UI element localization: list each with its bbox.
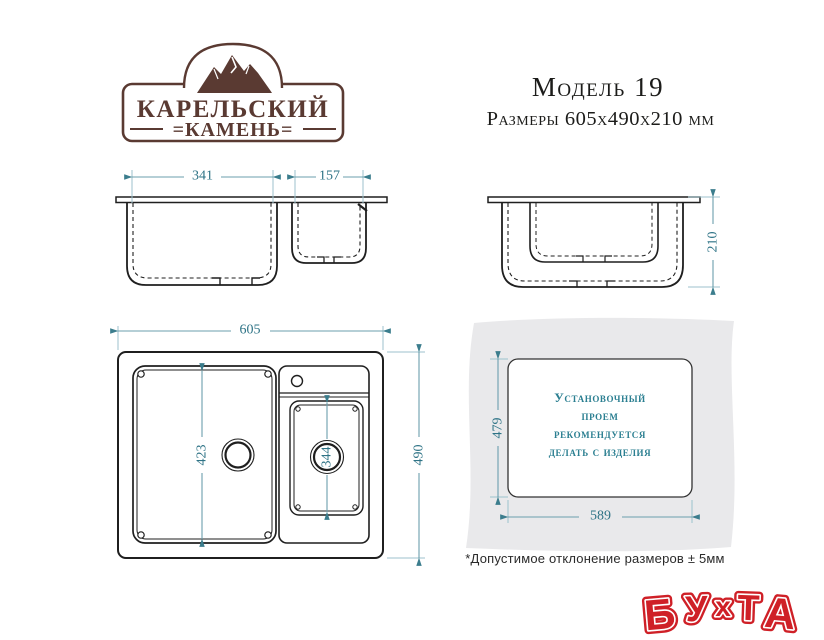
brand-name-line2: =КАМЕНЬ= <box>173 119 294 141</box>
cutout-note-line4: делать с изделия <box>508 443 692 461</box>
svg-text:У: У <box>685 588 709 630</box>
svg-text:341: 341 <box>192 169 213 184</box>
svg-text:х: х <box>715 591 731 622</box>
main-drain-outer <box>222 439 254 471</box>
dimension-423: 423 <box>195 371 210 539</box>
svg-text:344: 344 <box>320 447 335 468</box>
dimension-210: 210 <box>688 197 721 287</box>
main-bowl-inner-dashed <box>133 203 271 278</box>
product-dimension-sheet: { "brand_logo": { "line1": "КАРЕЛЬСКИЙ",… <box>0 0 824 640</box>
dimension-490: 490 <box>387 352 427 558</box>
main-bowl-drain-marks <box>212 278 260 285</box>
front-view-drawing: 341 157 <box>116 169 387 286</box>
dimension-341: 341 <box>132 169 273 204</box>
svg-text:157: 157 <box>319 169 340 184</box>
svg-text:605: 605 <box>240 323 261 338</box>
outer-bowl-inner-dashed <box>508 203 677 281</box>
page-title: Модель 19 <box>448 72 748 103</box>
inner-bowl-outline <box>530 203 658 263</box>
svg-text:589: 589 <box>590 509 611 524</box>
sink-rim-side <box>488 197 700 203</box>
faucet-hole <box>292 376 303 387</box>
side-view-drawing: 210 <box>488 197 721 287</box>
cutout-note-line1: Установочный <box>508 389 692 407</box>
watermark-fill-layer: Б У х Т А <box>642 587 797 640</box>
sink-rim-front <box>116 197 387 203</box>
svg-text:490: 490 <box>412 445 427 466</box>
watermark-logo: Б У х Т А Б У х Т А <box>642 587 797 640</box>
main-drain-inner <box>226 443 251 468</box>
svg-text:210: 210 <box>706 232 721 253</box>
small-bowl-inner-dashed <box>298 203 360 257</box>
dimension-605: 605 <box>118 323 383 351</box>
main-bowl-outline <box>127 203 277 286</box>
dimension-157: 157 <box>295 169 363 204</box>
tolerance-note: *Допустимое отклонение размеров ± 5мм <box>445 551 745 566</box>
svg-text:479: 479 <box>491 418 506 439</box>
cutout-note: Установочный проем рекомендуется делать … <box>508 389 692 461</box>
svg-text:А: А <box>763 589 798 640</box>
top-view-drawing: 605 490 423 344 <box>118 323 427 559</box>
outer-bowl-outline <box>502 203 683 288</box>
inner-bowl-drain-marks <box>576 256 612 262</box>
svg-text:Т: Т <box>737 587 760 629</box>
cutout-note-line3: рекомендуется <box>508 425 692 443</box>
page-subtitle: Размеры 605х490х210 мм <box>448 108 753 131</box>
svg-text:Б: Б <box>642 590 677 640</box>
dimension-344: 344 <box>320 403 335 512</box>
svg-text:423: 423 <box>195 445 210 466</box>
cutout-note-line2: проем <box>508 407 692 425</box>
small-bowl-outline <box>292 203 366 264</box>
inner-bowl-inner-dashed <box>536 203 652 256</box>
brand-logo: КАРЕЛЬСКИЙ =КАМЕНЬ= <box>123 44 343 141</box>
